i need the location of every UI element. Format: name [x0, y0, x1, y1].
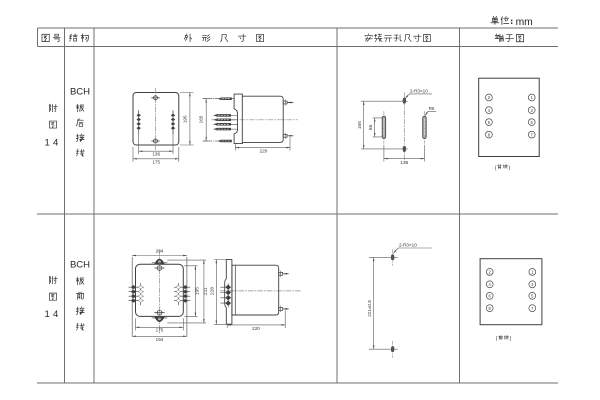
svg-text:66: 66 — [368, 124, 374, 130]
svg-text:220: 220 — [260, 149, 268, 154]
svg-text:mm: mm — [516, 17, 533, 28]
svg-text:): ) — [510, 336, 512, 342]
svg-text:165: 165 — [199, 115, 204, 123]
svg-text:195: 195 — [182, 115, 187, 123]
svg-text:14: 14 — [45, 309, 62, 320]
svg-text:165: 165 — [357, 121, 363, 129]
svg-text:228: 228 — [209, 287, 215, 295]
svg-text:BCH: BCH — [70, 87, 90, 98]
svg-text:195: 195 — [195, 287, 201, 295]
svg-text:2-R3×10: 2-R3×10 — [410, 89, 428, 94]
svg-text:221±0.8: 221±0.8 — [367, 300, 372, 317]
svg-text:2-R3×10: 2-R3×10 — [399, 243, 417, 248]
svg-text:136: 136 — [400, 160, 408, 166]
svg-text:175: 175 — [152, 159, 160, 164]
svg-text:194: 194 — [156, 337, 164, 342]
svg-text:BCH: BCH — [70, 260, 90, 271]
svg-text:136: 136 — [152, 152, 160, 157]
svg-text:): ) — [509, 165, 511, 171]
svg-text:175: 175 — [156, 328, 164, 333]
svg-text:211: 211 — [203, 287, 209, 295]
svg-text:204: 204 — [156, 249, 164, 254]
svg-text:(: ( — [496, 336, 498, 342]
svg-text:220: 220 — [252, 326, 260, 331]
svg-text:R5: R5 — [429, 106, 435, 111]
svg-text:14: 14 — [45, 138, 62, 149]
svg-text:(: ( — [495, 165, 497, 171]
